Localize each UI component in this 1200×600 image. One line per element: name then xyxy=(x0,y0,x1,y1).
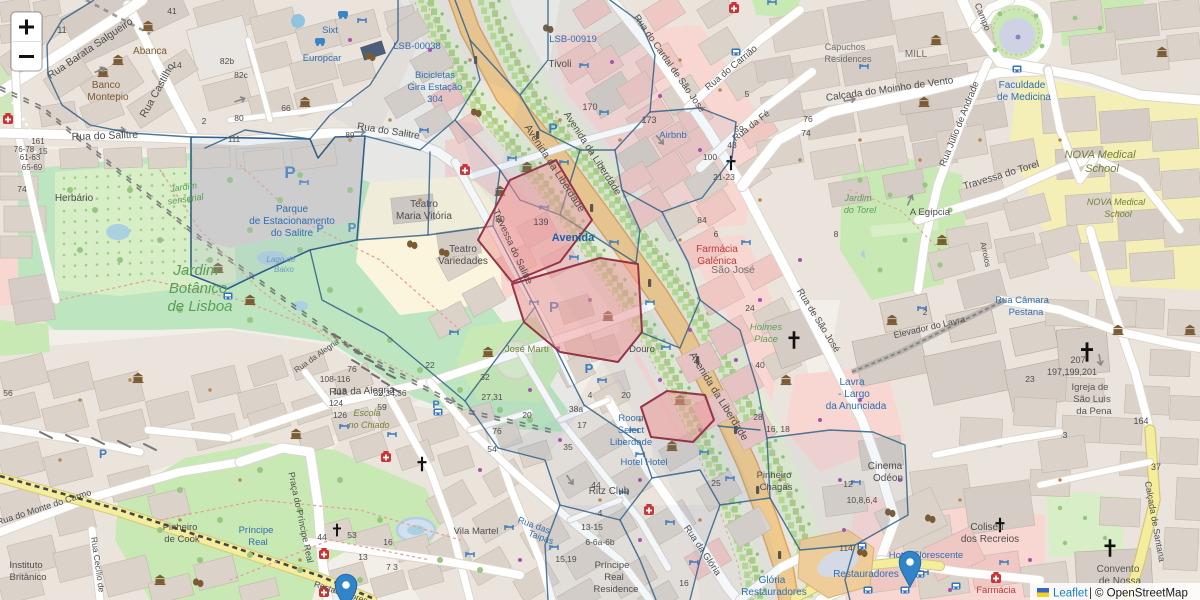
svg-text:Real: Real xyxy=(604,572,624,583)
svg-text:Coliseu: Coliseu xyxy=(970,522,1003,533)
svg-text:de Lisboa: de Lisboa xyxy=(167,298,232,315)
svg-text:Capuchos: Capuchos xyxy=(825,42,866,52)
svg-text:66: 66 xyxy=(281,103,291,113)
svg-text:4: 4 xyxy=(588,390,593,400)
svg-text:197,199,201: 197,199,201 xyxy=(1047,367,1097,377)
svg-text:Chagas: Chagas xyxy=(760,482,793,493)
svg-text:21-23: 21-23 xyxy=(713,172,735,182)
svg-text:Airbnb: Airbnb xyxy=(659,130,686,141)
svg-text:LSB-00919: LSB-00919 xyxy=(549,34,597,45)
svg-text:Igreja de: Igreja de xyxy=(1072,382,1109,393)
svg-text:16: 16 xyxy=(679,578,689,588)
svg-text:Rua Câmara: Rua Câmara xyxy=(995,295,1050,306)
svg-text:Leaflet: Leaflet xyxy=(1053,588,1088,600)
svg-text:43: 43 xyxy=(727,140,737,150)
svg-text:20: 20 xyxy=(621,390,631,400)
svg-text:139: 139 xyxy=(533,217,548,227)
svg-text:Banco: Banco xyxy=(92,80,121,91)
svg-text:24: 24 xyxy=(745,303,755,313)
svg-text:Tivoli: Tivoli xyxy=(549,59,572,70)
svg-text:13-15: 13-15 xyxy=(581,522,603,532)
svg-text:do Salitre: do Salitre xyxy=(271,228,314,239)
svg-text:23: 23 xyxy=(1025,374,1035,384)
svg-text:76: 76 xyxy=(803,114,813,124)
svg-text:82c: 82c xyxy=(234,70,248,80)
svg-text:74: 74 xyxy=(17,184,27,194)
svg-text:4: 4 xyxy=(598,508,603,518)
svg-text:56: 56 xyxy=(3,388,13,398)
svg-text:Montepio: Montepio xyxy=(87,92,129,103)
svg-text:76: 76 xyxy=(347,364,357,374)
svg-text:A Egípcia: A Egípcia xyxy=(910,207,951,218)
svg-text:São Luís: São Luís xyxy=(1073,394,1111,405)
svg-text:7 3: 7 3 xyxy=(386,562,398,572)
svg-text:Glória: Glória xyxy=(759,575,786,586)
svg-text:Instituto: Instituto xyxy=(9,560,42,571)
svg-text:61-63: 61-63 xyxy=(20,153,41,162)
svg-text:16: 16 xyxy=(383,537,393,547)
svg-text:da Anunciada: da Anunciada xyxy=(826,401,887,412)
svg-text:Odéon: Odéon xyxy=(873,473,903,484)
svg-text:Bicicletas: Bicicletas xyxy=(415,70,455,81)
svg-text:82b: 82b xyxy=(220,56,234,66)
svg-text:40: 40 xyxy=(755,360,765,370)
svg-text:74: 74 xyxy=(801,128,811,138)
svg-text:de Estacionamento: de Estacionamento xyxy=(249,216,335,227)
svg-text:173: 173 xyxy=(641,115,656,125)
svg-text:84: 84 xyxy=(697,215,707,225)
svg-text:41: 41 xyxy=(167,6,177,16)
svg-text:5: 5 xyxy=(745,89,750,99)
svg-text:do Torel: do Torel xyxy=(844,205,877,215)
svg-text:Douro: Douro xyxy=(629,344,655,355)
svg-text:São José: São José xyxy=(711,264,755,276)
svg-text:89: 89 xyxy=(346,131,355,140)
svg-text:|: | xyxy=(1089,588,1092,600)
svg-text:Gira Estação: Gira Estação xyxy=(408,82,463,93)
svg-text:Residences: Residences xyxy=(824,54,872,64)
svg-text:161: 161 xyxy=(31,137,45,146)
svg-text:126: 126 xyxy=(333,410,347,420)
svg-text:Teatro: Teatro xyxy=(410,199,438,210)
svg-text:80: 80 xyxy=(234,113,244,123)
svg-text:Jardim: Jardim xyxy=(172,262,218,279)
svg-text:20: 20 xyxy=(522,410,532,420)
svg-text:100: 100 xyxy=(703,152,717,162)
svg-text:124: 124 xyxy=(329,398,343,408)
svg-text:Farmácia: Farmácia xyxy=(696,244,738,255)
svg-text:School: School xyxy=(1104,209,1133,219)
svg-text:111: 111 xyxy=(228,135,241,144)
svg-text:Farmácia: Farmácia xyxy=(976,585,1016,596)
svg-text:NOVA Medical: NOVA Medical xyxy=(1064,149,1136,161)
svg-text:Teatro: Teatro xyxy=(449,244,477,255)
svg-text:10,8,6,4: 10,8,6,4 xyxy=(847,495,878,505)
svg-text:Pestana: Pestana xyxy=(1009,307,1045,318)
svg-text:Herbário: Herbário xyxy=(55,193,94,204)
svg-text:35: 35 xyxy=(563,442,573,452)
svg-text:School: School xyxy=(1085,163,1119,175)
svg-text:11: 11 xyxy=(57,25,66,35)
svg-text:80: 80 xyxy=(495,214,505,224)
svg-text:Residence: Residence xyxy=(594,584,639,595)
svg-text:2: 2 xyxy=(923,307,928,317)
svg-text:207: 207 xyxy=(1070,355,1085,365)
svg-text:Cinema: Cinema xyxy=(868,461,903,472)
svg-text:- Largo: - Largo xyxy=(838,389,870,400)
svg-text:53: 53 xyxy=(347,530,357,540)
svg-text:Vila Martel: Vila Martel xyxy=(454,526,499,537)
svg-text:Sixt: Sixt xyxy=(322,25,338,36)
svg-text:Botânico: Botânico xyxy=(169,280,227,297)
svg-text:Abanca: Abanca xyxy=(133,46,167,57)
svg-text:P: P xyxy=(99,447,107,461)
svg-text:P: P xyxy=(585,361,594,376)
svg-text:Convento: Convento xyxy=(1097,564,1140,575)
svg-text:54: 54 xyxy=(487,444,497,454)
svg-text:Príncipe: Príncipe xyxy=(595,560,630,571)
svg-text:44: 44 xyxy=(591,480,601,490)
svg-text:Baixo: Baixo xyxy=(274,265,295,274)
svg-text:44: 44 xyxy=(317,532,327,542)
svg-text:59: 59 xyxy=(734,124,744,134)
svg-text:15,19: 15,19 xyxy=(555,554,577,564)
svg-text:Room: Room xyxy=(618,413,643,424)
svg-text:59: 59 xyxy=(377,402,387,412)
svg-text:de Cook: de Cook xyxy=(164,534,200,545)
svg-text:Place: Place xyxy=(754,334,778,345)
svg-text:170: 170 xyxy=(582,102,597,112)
svg-text:32: 32 xyxy=(480,372,490,382)
svg-text:Jardim: Jardim xyxy=(843,193,872,203)
svg-text:Variedades: Variedades xyxy=(438,256,488,267)
svg-text:37: 37 xyxy=(1151,462,1161,472)
svg-text:Britânico: Britânico xyxy=(10,572,47,583)
svg-text:6: 6 xyxy=(714,229,719,239)
svg-text:8: 8 xyxy=(834,229,839,239)
svg-text:27,31: 27,31 xyxy=(481,392,503,402)
svg-text:Hotel Hotel: Hotel Hotel xyxy=(621,457,668,468)
svg-text:Select: Select xyxy=(618,425,645,436)
svg-text:© OpenStreetMap: © OpenStreetMap xyxy=(1095,588,1188,600)
svg-text:Avenida: Avenida xyxy=(552,232,595,244)
svg-text:22: 22 xyxy=(425,360,435,370)
svg-text:Holmes: Holmes xyxy=(750,322,782,333)
svg-text:LSB-00038: LSB-00038 xyxy=(393,41,441,52)
svg-text:Maria Vitória: Maria Vitória xyxy=(396,211,452,222)
svg-text:Restauradores: Restauradores xyxy=(833,569,899,580)
svg-text:76: 76 xyxy=(492,426,502,436)
svg-text:MILL: MILL xyxy=(905,49,928,60)
svg-text:304: 304 xyxy=(427,94,443,105)
svg-text:Pinheiro: Pinheiro xyxy=(163,522,198,533)
svg-text:Parque: Parque xyxy=(276,204,309,215)
svg-text:2: 2 xyxy=(202,116,207,126)
svg-text:16, 18: 16, 18 xyxy=(766,424,790,434)
svg-text:Pinheiro: Pinheiro xyxy=(757,470,792,481)
svg-text:12: 12 xyxy=(843,479,853,489)
svg-text:25: 25 xyxy=(711,478,721,488)
svg-text:32,34,36: 32,34,36 xyxy=(373,388,406,398)
svg-text:28: 28 xyxy=(753,412,763,422)
svg-text:13: 13 xyxy=(358,552,368,562)
svg-text:Lavra: Lavra xyxy=(839,377,864,388)
svg-text:3: 3 xyxy=(1063,430,1068,440)
svg-text:dos Recreios: dos Recreios xyxy=(961,534,1019,545)
svg-text:Faculdade: Faculdade xyxy=(999,80,1046,91)
svg-text:17: 17 xyxy=(577,420,587,430)
svg-text:164: 164 xyxy=(1133,416,1148,426)
svg-text:José Martí: José Martí xyxy=(505,344,550,355)
svg-text:de Medicina: de Medicina xyxy=(997,92,1051,103)
svg-text:Liberdade: Liberdade xyxy=(610,437,652,448)
svg-text:Príncipe: Príncipe xyxy=(239,525,274,536)
svg-text:118: 118 xyxy=(333,386,347,396)
svg-text:da Pena: da Pena xyxy=(1076,406,1112,417)
svg-text:Europcar: Europcar xyxy=(303,53,342,64)
svg-text:Rua do Salitre: Rua do Salitre xyxy=(71,129,138,143)
svg-text:14: 14 xyxy=(172,60,182,70)
svg-text:Restauradores: Restauradores xyxy=(741,587,807,598)
svg-text:Lago de: Lago de xyxy=(267,255,296,264)
svg-text:NOVA Medical: NOVA Medical xyxy=(1087,197,1146,207)
svg-text:no Chiado: no Chiado xyxy=(348,420,389,430)
svg-text:114: 114 xyxy=(839,543,853,553)
svg-text:38a: 38a xyxy=(569,404,583,414)
svg-text:108-116: 108-116 xyxy=(320,374,351,384)
svg-text:65-69: 65-69 xyxy=(22,163,43,172)
svg-text:6-6a-6b: 6-6a-6b xyxy=(585,537,615,547)
svg-text:Real: Real xyxy=(248,537,268,548)
